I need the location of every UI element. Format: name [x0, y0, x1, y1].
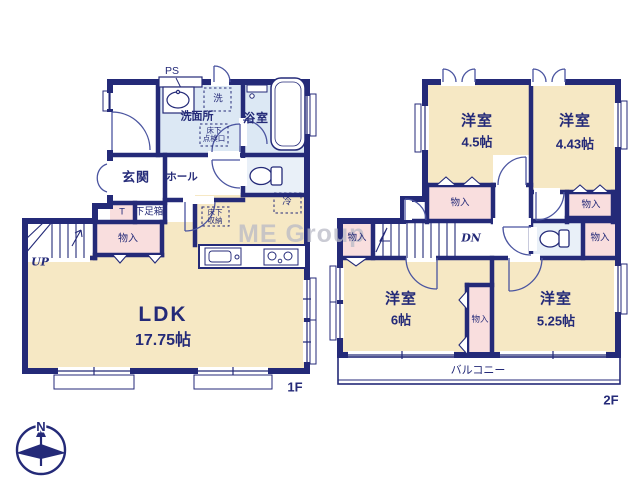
closet-under-nw-label: 物入 — [450, 199, 469, 210]
stairs-dn-label: DN — [461, 233, 481, 246]
fridge-label: 冷 — [282, 198, 292, 209]
pipe-space-box — [159, 77, 202, 87]
room-se-size: 5.25帖 — [537, 315, 575, 330]
toilet-icon-2f — [540, 230, 569, 247]
floor1-tag: 1F — [287, 381, 302, 396]
underfloor-hatch-label: 床下 点検口 — [203, 127, 226, 143]
hall-label: ホール — [166, 171, 198, 183]
room-sw-size: 6帖 — [391, 314, 411, 329]
watermark: ME Group — [238, 220, 365, 249]
bathroom-label: 浴室 — [243, 112, 269, 126]
stairs-up-label: UP — [31, 257, 49, 270]
closet-west-label: 物入 — [347, 234, 366, 245]
ldk-size-label: 17.75帖 — [135, 332, 191, 350]
toilet-icon-1f — [250, 167, 282, 185]
room-ne-size: 4.43帖 — [556, 138, 594, 153]
washer-label: 洗 — [213, 95, 223, 106]
room-sw-name: 洋室 — [385, 290, 417, 307]
compass-icon: N — [16, 419, 66, 474]
floor2-tag: 2F — [603, 394, 618, 409]
ps-label: PS — [165, 65, 179, 77]
ldk-label: LDK — [138, 303, 187, 327]
compass-north-text: N — [36, 419, 45, 434]
room-nw-name: 洋室 — [461, 112, 493, 129]
balcony-label: バルコニー — [451, 365, 506, 378]
entrance-label: 玄関 — [122, 171, 150, 186]
room-ne-name: 洋室 — [559, 112, 591, 129]
closet-east-label: 物入 — [590, 234, 609, 245]
underfloor-storage-label: 床下 収納 — [208, 209, 223, 225]
floorplan-page: N ME Group PS 洗 洗面所 床下 点検口 浴室 玄関 ホール T 下… — [0, 0, 640, 480]
sink-icon — [163, 87, 194, 113]
washroom-label: 洗面所 — [181, 111, 214, 124]
closet-center-label: 物入 — [471, 315, 488, 325]
t-box-label: T — [119, 208, 125, 219]
shoe-cabinet-label: 下足箱 — [135, 208, 164, 219]
room-se-name: 洋室 — [540, 290, 572, 307]
closet-under-ne-label: 物入 — [581, 201, 600, 212]
room-nw-size: 4.5帖 — [461, 136, 492, 151]
closet-label-1f: 物入 — [118, 233, 138, 245]
